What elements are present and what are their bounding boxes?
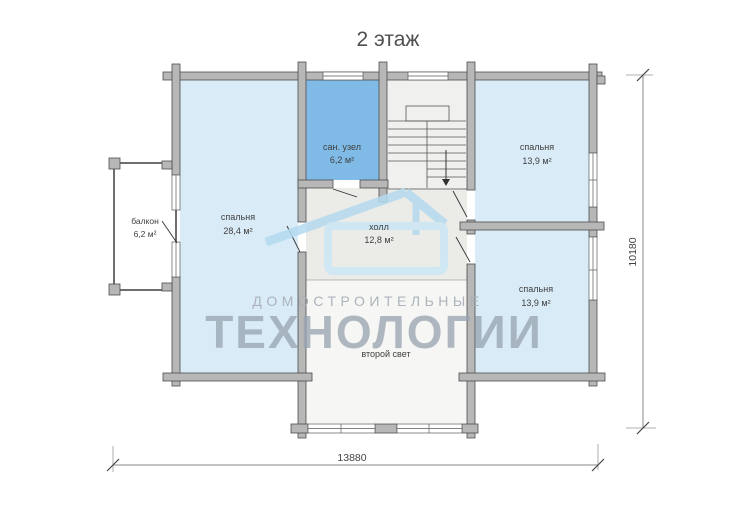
dimension-width: 13880 <box>107 444 604 472</box>
dimension-height: 10180 <box>626 69 656 434</box>
wall-joint-tab <box>597 76 605 84</box>
bedroom-bottom-right-label: спальня <box>519 284 553 294</box>
wall-segment <box>298 62 306 222</box>
bedroom-left-area: 28,4 м² <box>223 226 252 236</box>
hall-label: холл <box>369 222 389 232</box>
room-san-uzel <box>306 80 379 180</box>
wall-segment <box>360 180 388 188</box>
floor-plan-svg: ДОМОСТРОИТЕЛЬНЫЕ ТЕХНОЛОГИИ сан. узел 6,… <box>0 0 740 523</box>
bedroom-left-label: спальня <box>221 212 255 222</box>
wall-segment <box>375 424 397 433</box>
wall-segment <box>460 222 604 230</box>
bedroom-top-right-area: 13,9 м² <box>522 156 551 166</box>
wall-joint-tab <box>162 161 172 169</box>
wall-segment <box>172 277 180 386</box>
balcony-label: балкон <box>131 216 159 226</box>
bedroom-bottom-right-area: 13,9 м² <box>521 298 550 308</box>
bedroom-top-right-label: спальня <box>520 142 554 152</box>
wall-segment <box>291 424 308 433</box>
wall-segment <box>163 373 312 381</box>
hall-area: 12,8 м² <box>364 235 393 245</box>
floor-plan-page: ДОМОСТРОИТЕЛЬНЫЕ ТЕХНОЛОГИИ сан. узел 6,… <box>0 0 740 523</box>
page-title: 2 этаж <box>357 28 420 51</box>
dimension-height-value: 10180 <box>627 237 639 266</box>
wall-segment <box>298 180 333 188</box>
wall-segment <box>462 424 478 433</box>
wall-segment <box>589 64 597 153</box>
dimension-width-value: 13880 <box>337 452 366 464</box>
wall-segment <box>459 373 605 381</box>
balcony-outline <box>114 163 176 290</box>
san-uzel-label: сан. узел <box>323 142 361 152</box>
balcony-area: 6,2 м² <box>134 229 157 239</box>
second-light-label: второй свет <box>361 349 410 359</box>
san-uzel-area: 6,2 м² <box>330 155 354 165</box>
balcony-post <box>109 284 120 295</box>
wall-joint-tab <box>162 283 172 291</box>
wall-segment <box>467 62 475 190</box>
balcony-post <box>109 158 120 169</box>
wall-segment <box>172 64 180 175</box>
